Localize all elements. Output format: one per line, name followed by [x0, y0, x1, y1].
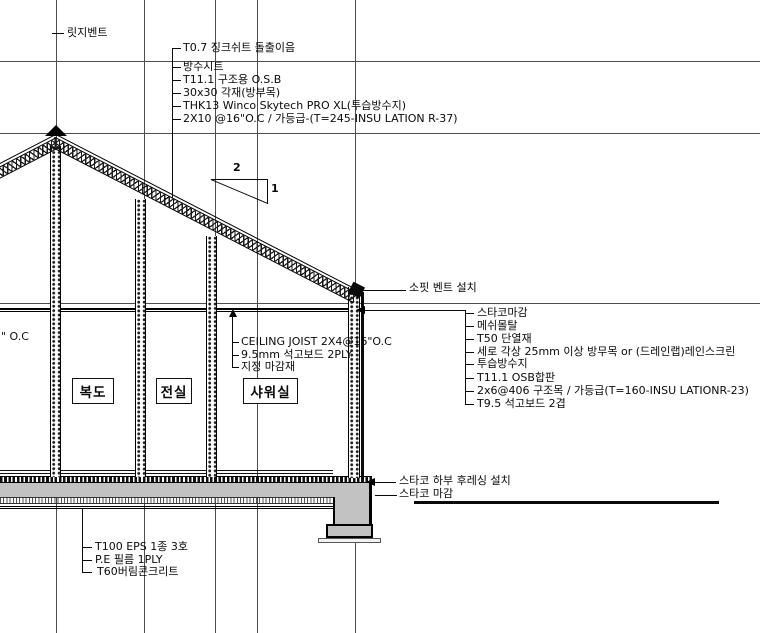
ridge-cap [45, 125, 67, 136]
callout-leader [364, 310, 465, 311]
roof-layer-label: T0.7 징크쉬트 돌출이음 [183, 42, 295, 54]
callout-tick [82, 547, 92, 548]
callout-leader [375, 482, 396, 483]
foundation-stem-edge [333, 497, 335, 524]
wall-layer-label: 스타코마감 [477, 307, 528, 319]
slope-triangle-side [267, 179, 268, 204]
callout-tick [465, 404, 474, 405]
room-label-corridor: 복도 [72, 378, 114, 404]
callout-tick [465, 326, 474, 327]
exterior-wall [348, 287, 360, 478]
ridge-vent-label: 릿지벤트 [67, 27, 107, 39]
footing-base-plate [318, 538, 381, 543]
floor-layer-label: T60버림콘크리트 [97, 566, 178, 578]
grid-line-horizontal [0, 133, 760, 134]
interior-wall [206, 236, 217, 477]
grid-line-horizontal [0, 61, 760, 62]
foundation-stem [333, 483, 372, 524]
callout-tick [52, 33, 64, 34]
leader-arrow [366, 478, 375, 486]
soffit-vent-label: 소핏 벤트 설치 [409, 282, 477, 294]
wall-layer-label: T50 단열재 [477, 333, 532, 345]
callout-tick [82, 572, 92, 573]
roof-insulation-hatch [50, 138, 358, 304]
slope-triangle-hypotenuse [211, 179, 269, 204]
floor-hatch-band [0, 476, 372, 483]
callout-tick [172, 106, 181, 107]
stucco-face-line [361, 292, 364, 479]
wall-layer-label: T9.5 석고보드 2겹 [477, 398, 566, 410]
callout-tick [172, 80, 181, 81]
wall-under-ridge [50, 146, 61, 477]
slope-rise-value: 1 [271, 183, 279, 195]
slope-run-value: 2 [233, 162, 241, 174]
callout-tick [465, 352, 474, 353]
stucco-finish-label: 스타코 마감 [399, 488, 453, 500]
roof-layer-label: 방수시트 [183, 61, 223, 73]
room-name: 샤워실 [250, 381, 290, 401]
roof-layer-label: T11.1 구조용 O.S.B [183, 74, 281, 86]
callout-tick [232, 342, 239, 343]
grid-line-horizontal [0, 303, 760, 304]
callout-tick [172, 93, 181, 94]
callout-tick [465, 313, 474, 314]
room-name: 복도 [80, 381, 107, 401]
wall-layer-label: 투습방수지 [477, 358, 528, 370]
callout-tick [172, 48, 181, 49]
wall-layer-label: 2x6@406 구조목 / 가등급(T=160-INSU LATIONR-23) [477, 385, 749, 397]
concrete-slab [0, 483, 333, 497]
left-edge-partial-label: " O.C [1, 331, 29, 343]
callout-tick [232, 367, 239, 368]
callout-leader [362, 290, 406, 291]
callout-tick [465, 364, 474, 365]
lean-concrete-line [0, 506, 333, 509]
ceiling-layer-label: CEILING JOIST 2X4@16"O.C [241, 336, 392, 348]
roof-slope-right [50, 134, 360, 303]
room-label-vestibule: 전실 [156, 378, 192, 404]
wall-layer-label: T11.1 OSB합판 [477, 372, 555, 384]
slope-triangle-top [211, 179, 268, 180]
callout-tick [465, 391, 474, 392]
callout-tick [172, 67, 181, 68]
section-drawing: 릿지벤트 T0.7 징크쉬트 돌출이음 방수시트 T11.1 구조용 O.S.B… [0, 0, 760, 633]
leader-arrow [229, 309, 237, 317]
callout-tick [232, 355, 239, 356]
ground-line [414, 501, 719, 504]
callout-bracket [82, 509, 83, 573]
room-name: 전실 [161, 381, 188, 401]
callout-tick [172, 119, 181, 120]
callout-tick [465, 339, 474, 340]
floor-layer-label: T100 EPS 1종 3호 [95, 541, 188, 553]
ceiling-layer-label: 지정 마감재 [241, 361, 295, 373]
wall-layer-label: 메쉬몰탈 [477, 320, 517, 332]
interior-wall [135, 199, 146, 477]
roof-layer-label: 2X10 @16"O.C / 가등급-(T=245-INSU LATION R-… [183, 113, 458, 125]
roof-layer-label: THK13 Winco Skytech PRO XL(투습방수지) [183, 100, 406, 112]
eps-insulation-band [0, 497, 333, 504]
callout-bracket [172, 48, 173, 198]
callout-tick [465, 378, 474, 379]
callout-leader [375, 495, 397, 496]
roof-layer-label: 30x30 각재(방부목) [183, 87, 280, 99]
foundation-footing [326, 524, 373, 538]
callout-tick [82, 560, 92, 561]
room-label-shower: 샤워실 [243, 378, 298, 404]
stucco-flashing-label: 스타코 하부 후레싱 설치 [399, 475, 511, 487]
